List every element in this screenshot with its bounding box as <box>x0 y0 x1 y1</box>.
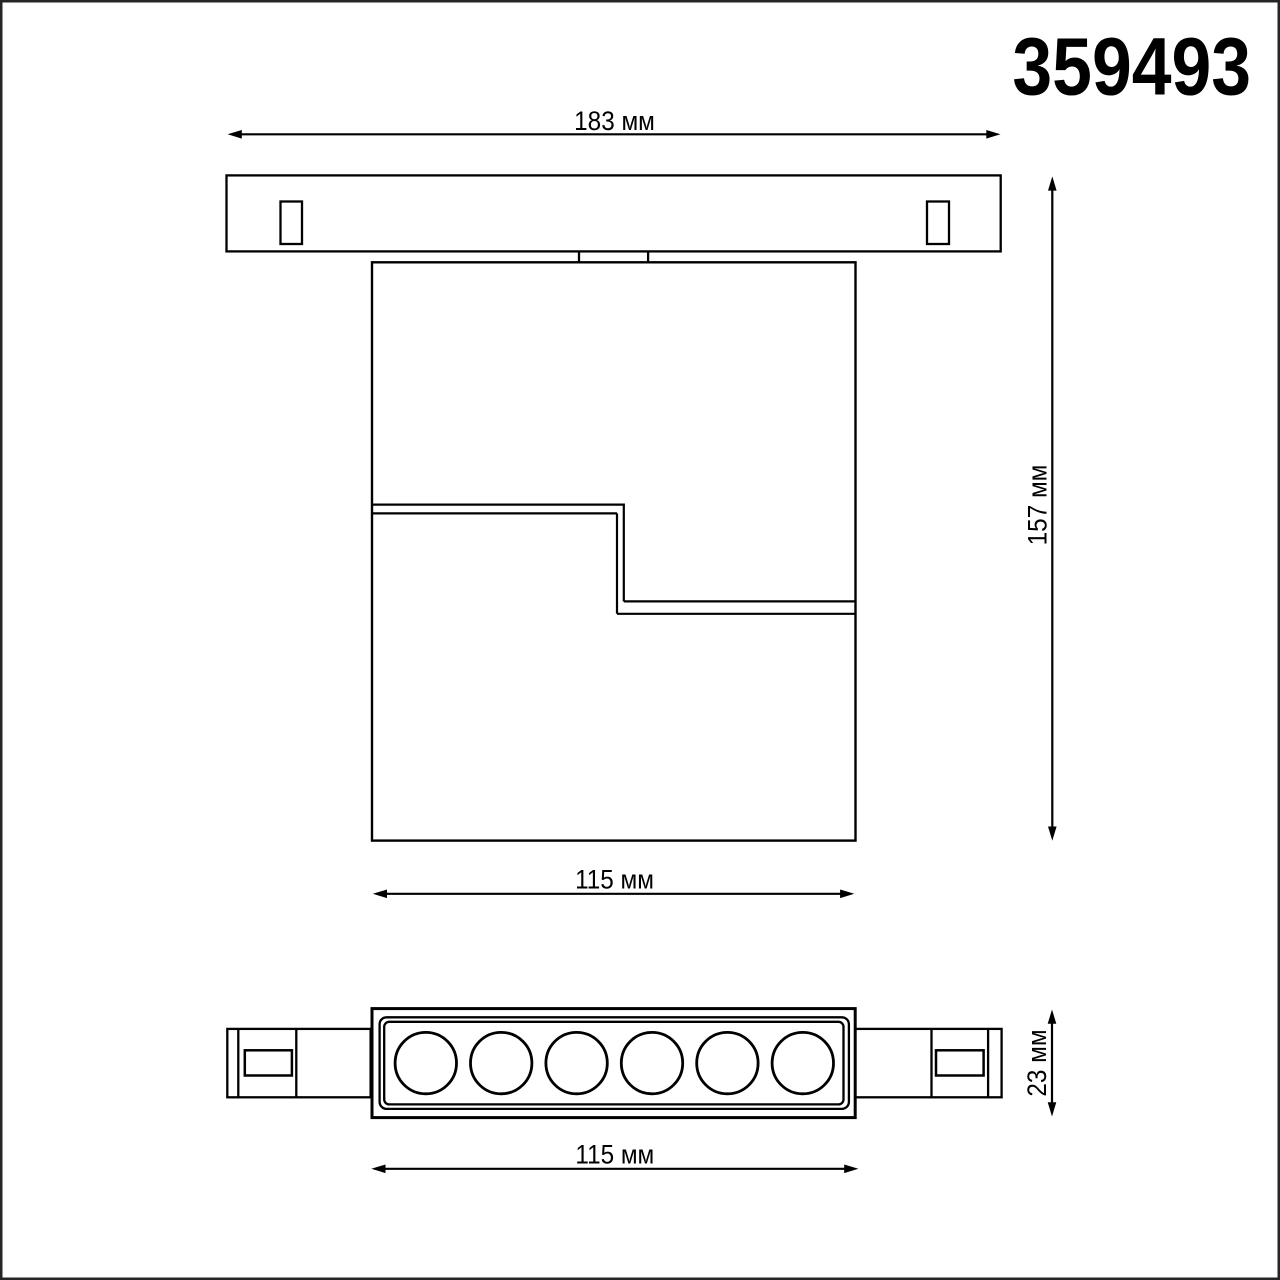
svg-text:115 мм: 115 мм <box>575 865 654 894</box>
svg-text:359493: 359493 <box>1012 21 1251 113</box>
svg-text:157 мм: 157 мм <box>1023 465 1052 546</box>
svg-text:115 мм: 115 мм <box>575 1140 654 1169</box>
svg-text:183 мм: 183 мм <box>574 107 655 136</box>
svg-text:23 мм: 23 мм <box>1023 1029 1052 1096</box>
